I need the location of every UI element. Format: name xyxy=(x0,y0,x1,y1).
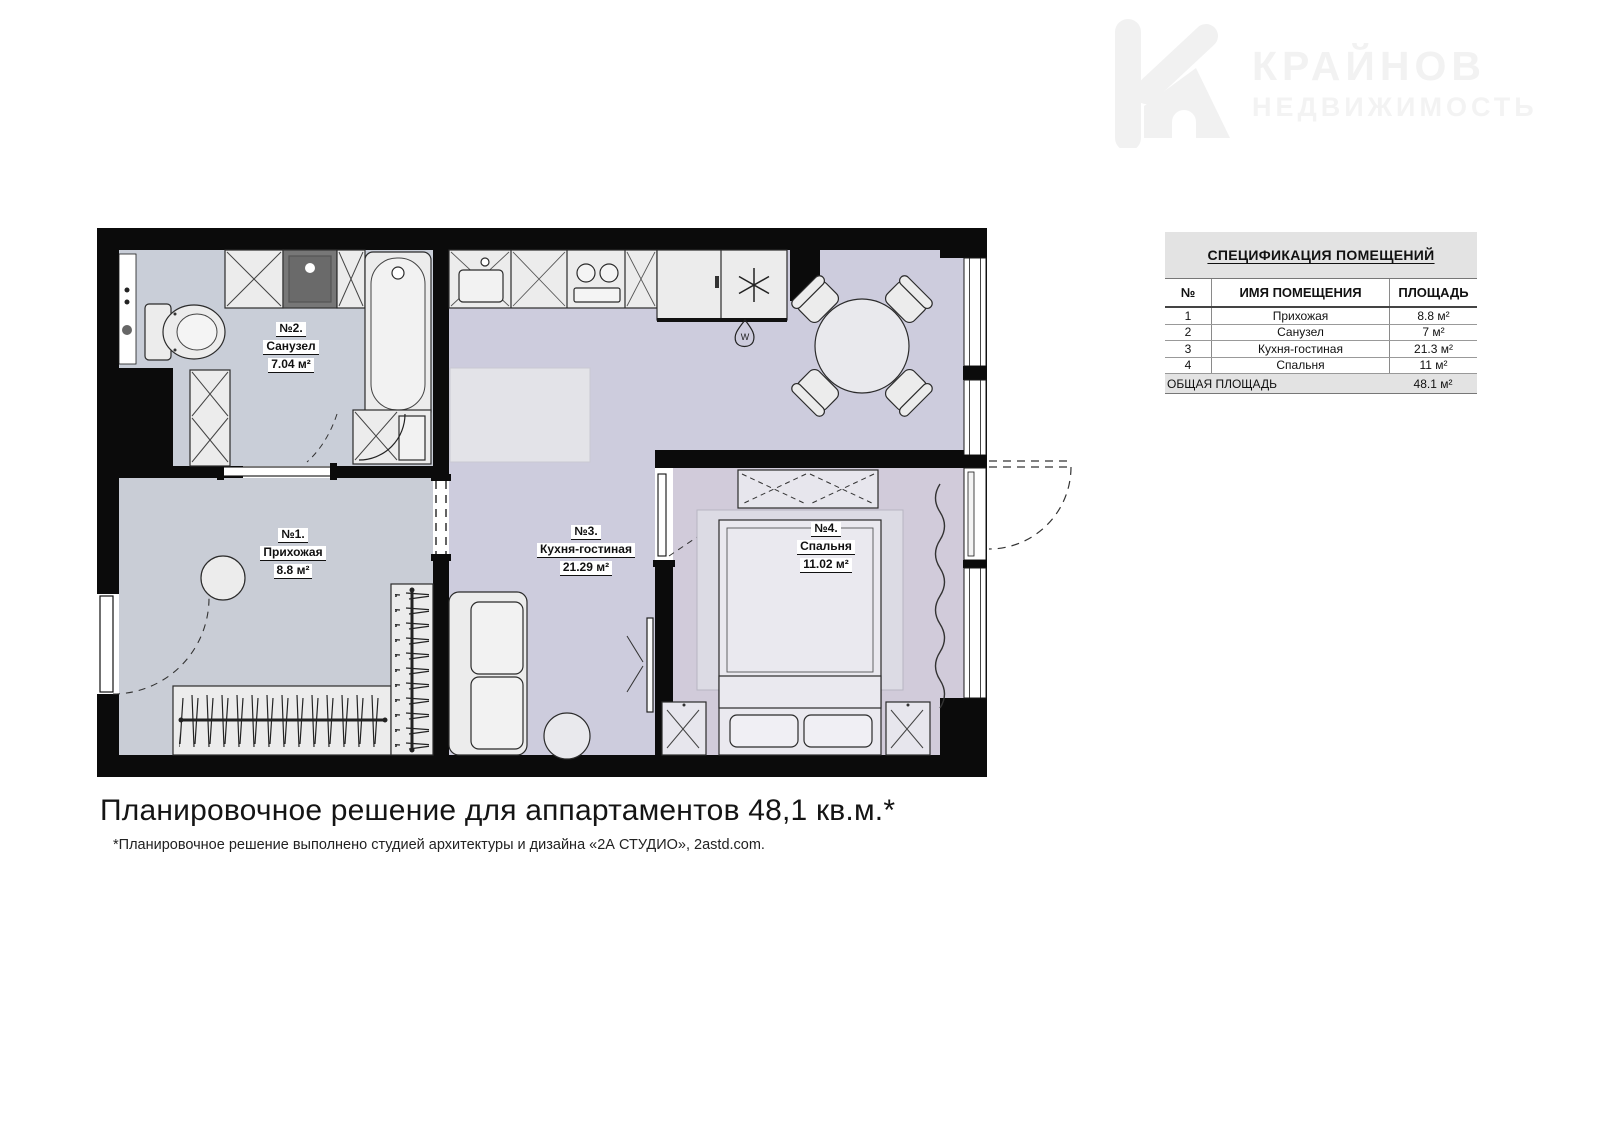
balcony-door-swing xyxy=(989,461,1071,549)
table-row: 2 Санузел 7 м² xyxy=(1165,325,1477,342)
spec-table-total: ОБЩАЯ ПЛОЩАДЬ 48.1 м² xyxy=(1165,374,1477,394)
room-number: №2. xyxy=(276,322,305,337)
brand-logo: КРАЙНОВ НЕДВИЖИМОСТЬ xyxy=(1100,12,1540,152)
bathtub xyxy=(365,252,431,420)
logo-house-k-icon xyxy=(1100,12,1240,148)
nightstand xyxy=(662,702,706,755)
window xyxy=(964,258,986,366)
specification-table: СПЕЦИФИКАЦИЯ ПОМЕЩЕНИЙ № ИМЯ ПОМЕЩЕНИЯ П… xyxy=(1165,232,1477,394)
brand-subtitle: НЕДВИЖИМОСТЬ xyxy=(1252,92,1538,122)
table-row: 1 Прихожая 8.8 м² xyxy=(1165,308,1477,325)
row-name: Прихожая xyxy=(1211,308,1389,324)
toilet xyxy=(145,304,225,360)
balcony-door xyxy=(964,468,986,560)
wardrobe-bottom xyxy=(173,686,391,755)
bathroom-counter xyxy=(225,250,365,308)
window xyxy=(964,380,986,455)
window xyxy=(964,568,986,698)
row-area: 11 м² xyxy=(1389,358,1477,374)
spec-table-title: СПЕЦИФИКАЦИЯ ПОМЕЩЕНИЙ xyxy=(1165,232,1477,278)
dining-table xyxy=(815,299,909,393)
col-header-area: ПЛОЩАДЬ xyxy=(1389,279,1477,306)
row-num: 2 xyxy=(1165,325,1211,341)
room-number: №3. xyxy=(571,525,600,540)
row-name: Кухня-гостиная xyxy=(1211,341,1389,357)
row-num: 3 xyxy=(1165,341,1211,357)
room-area: 8.8 м² xyxy=(274,564,313,579)
wardrobe-side xyxy=(391,584,433,755)
brand-name: КРАЙНОВ xyxy=(1252,44,1538,88)
col-header-name: ИМЯ ПОМЕЩЕНИЯ xyxy=(1211,279,1389,306)
col-header-num: № xyxy=(1165,279,1211,306)
bedroom-wardrobe xyxy=(738,470,878,508)
hall-living-opening xyxy=(431,474,451,561)
shaft-niche xyxy=(119,254,136,364)
bathroom-sink xyxy=(283,250,337,308)
spec-table-header: № ИМЯ ПОМЕЩЕНИЯ ПЛОЩАДЬ xyxy=(1165,278,1477,308)
row-name: Санузел xyxy=(1211,325,1389,341)
plan-footnote: *Планировочное решение выполнено студией… xyxy=(113,837,765,853)
sofa xyxy=(449,592,527,755)
room-label-bathroom: №2. Санузел 7.04 м² xyxy=(236,322,346,373)
room-label-kitchen-living: №3. Кухня-гостиная 21.29 м² xyxy=(506,525,666,576)
room-label-bedroom: №4. Спальня 11.02 м² xyxy=(766,522,886,573)
row-num: 1 xyxy=(1165,308,1211,324)
coffee-table xyxy=(544,713,590,759)
bedroom xyxy=(662,470,945,755)
room-name: Прихожая xyxy=(260,546,325,561)
table-row: 4 Спальня 11 м² xyxy=(1165,358,1477,375)
nightstand xyxy=(886,702,930,755)
row-area: 8.8 м² xyxy=(1389,308,1477,324)
row-area: 7 м² xyxy=(1389,325,1477,341)
washing-machine xyxy=(353,410,431,464)
room-name: Кухня-гостиная xyxy=(537,543,635,558)
room-area: 21.29 м² xyxy=(560,561,612,576)
room-number: №4. xyxy=(811,522,840,537)
table-row: 3 Кухня-гостиная 21.3 м² xyxy=(1165,341,1477,358)
room-label-hallway: №1. Прихожая 8.8 м² xyxy=(238,528,348,579)
row-num: 4 xyxy=(1165,358,1211,374)
row-area: 21.3 м² xyxy=(1389,341,1477,357)
room-name: Санузел xyxy=(263,340,318,355)
plan-title: Планировочное решение для аппартаментов … xyxy=(100,794,895,828)
floor-plan: W xyxy=(97,228,1107,777)
pillow xyxy=(804,715,872,747)
bathroom-cabinet xyxy=(190,370,230,466)
kitchen-island xyxy=(450,368,590,462)
room-name: Спальня xyxy=(797,540,855,555)
total-area: 48.1 м² xyxy=(1389,374,1477,393)
room-number: №1. xyxy=(278,528,307,543)
room-area: 11.02 м² xyxy=(800,558,852,573)
total-label: ОБЩАЯ ПЛОЩАДЬ xyxy=(1165,374,1389,393)
pillow xyxy=(730,715,798,747)
room-area: 7.04 м² xyxy=(268,358,314,373)
svg-text:W: W xyxy=(741,332,750,342)
row-name: Спальня xyxy=(1211,358,1389,374)
